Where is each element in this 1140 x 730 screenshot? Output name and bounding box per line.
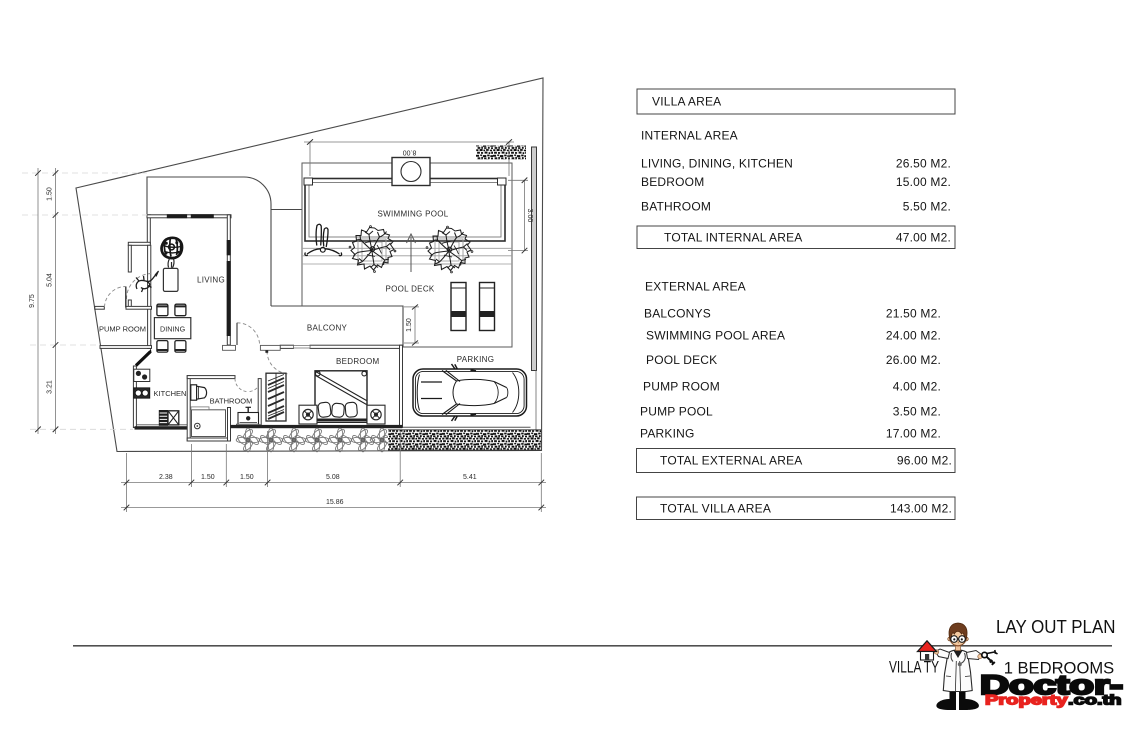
svg-text:24.00 M2.: 24.00 M2. bbox=[886, 329, 941, 343]
svg-text:15.86: 15.86 bbox=[326, 499, 344, 506]
svg-text:TOTAL EXTERNAL AREA: TOTAL EXTERNAL AREA bbox=[660, 454, 803, 468]
svg-text:SWIMMING POOL: SWIMMING POOL bbox=[377, 210, 448, 219]
svg-text:1.50: 1.50 bbox=[240, 474, 254, 481]
svg-text:VILLA AREA: VILLA AREA bbox=[652, 95, 721, 109]
svg-text:BATHROOM: BATHROOM bbox=[641, 200, 711, 214]
svg-text:PARKING: PARKING bbox=[457, 355, 495, 364]
svg-text:KITCHEN: KITCHEN bbox=[154, 389, 187, 398]
svg-text:BALCONYS: BALCONYS bbox=[644, 307, 711, 321]
svg-text:PUMP POOL: PUMP POOL bbox=[640, 405, 713, 419]
svg-text:4.00 M2.: 4.00 M2. bbox=[893, 380, 941, 394]
svg-text:47.00 M2.: 47.00 M2. bbox=[896, 231, 951, 245]
svg-text:5.08: 5.08 bbox=[326, 474, 340, 481]
svg-text:POOL DECK: POOL DECK bbox=[385, 285, 434, 294]
svg-text:9.75: 9.75 bbox=[29, 294, 36, 308]
svg-text:INTERNAL AREA: INTERNAL AREA bbox=[641, 129, 738, 143]
svg-text:5.41: 5.41 bbox=[463, 474, 477, 481]
svg-text:3.50 M2.: 3.50 M2. bbox=[893, 405, 941, 419]
svg-text:BEDROOM: BEDROOM bbox=[641, 175, 704, 189]
svg-text:5.04: 5.04 bbox=[47, 273, 54, 287]
svg-text:TOTAL INTERNAL AREA: TOTAL INTERNAL AREA bbox=[664, 231, 803, 245]
svg-text:143.00 M2.: 143.00 M2. bbox=[890, 502, 952, 516]
svg-text:LAY OUT PLAN: LAY OUT PLAN bbox=[996, 616, 1116, 637]
svg-text:BALCONY: BALCONY bbox=[307, 324, 348, 333]
svg-text:1.50: 1.50 bbox=[201, 474, 215, 481]
svg-text:BEDROOM: BEDROOM bbox=[336, 357, 379, 366]
svg-text:8.00: 8.00 bbox=[403, 149, 417, 156]
svg-text:1.50: 1.50 bbox=[406, 318, 413, 332]
svg-text:2.38: 2.38 bbox=[159, 474, 173, 481]
svg-text:LIVING: LIVING bbox=[197, 276, 225, 285]
svg-text:EXTERNAL AREA: EXTERNAL AREA bbox=[645, 280, 746, 294]
svg-text:.co.th: .co.th bbox=[1068, 692, 1122, 708]
svg-text:PARKING: PARKING bbox=[640, 427, 695, 441]
svg-text:TOTAL VILLA AREA: TOTAL VILLA AREA bbox=[660, 502, 771, 516]
svg-text:Property: Property bbox=[985, 692, 1068, 708]
svg-text:1.50: 1.50 bbox=[47, 187, 54, 201]
svg-text:3.21: 3.21 bbox=[47, 380, 54, 394]
svg-text:26.00 M2.: 26.00 M2. bbox=[886, 353, 941, 367]
svg-text:17.00 M2.: 17.00 M2. bbox=[886, 427, 941, 441]
svg-text:DINING: DINING bbox=[160, 325, 186, 334]
svg-text:LIVING, DINING, KITCHEN: LIVING, DINING, KITCHEN bbox=[641, 157, 793, 171]
svg-text:21.50 M2.: 21.50 M2. bbox=[886, 307, 941, 321]
svg-text:POOL DECK: POOL DECK bbox=[646, 353, 717, 367]
svg-text:26.50 M2.: 26.50 M2. bbox=[896, 157, 951, 171]
svg-text:3.00: 3.00 bbox=[526, 209, 533, 223]
svg-text:5.50 M2.: 5.50 M2. bbox=[903, 200, 951, 214]
svg-text:96.00 M2.: 96.00 M2. bbox=[897, 454, 952, 468]
svg-text:15.00 M2.: 15.00 M2. bbox=[896, 175, 951, 189]
svg-text:PUMP ROOM: PUMP ROOM bbox=[99, 325, 146, 334]
svg-text:SWIMMING POOL AREA: SWIMMING POOL AREA bbox=[646, 329, 785, 343]
svg-text:BATHROOM: BATHROOM bbox=[210, 397, 253, 406]
svg-text:PUMP ROOM: PUMP ROOM bbox=[643, 380, 720, 394]
